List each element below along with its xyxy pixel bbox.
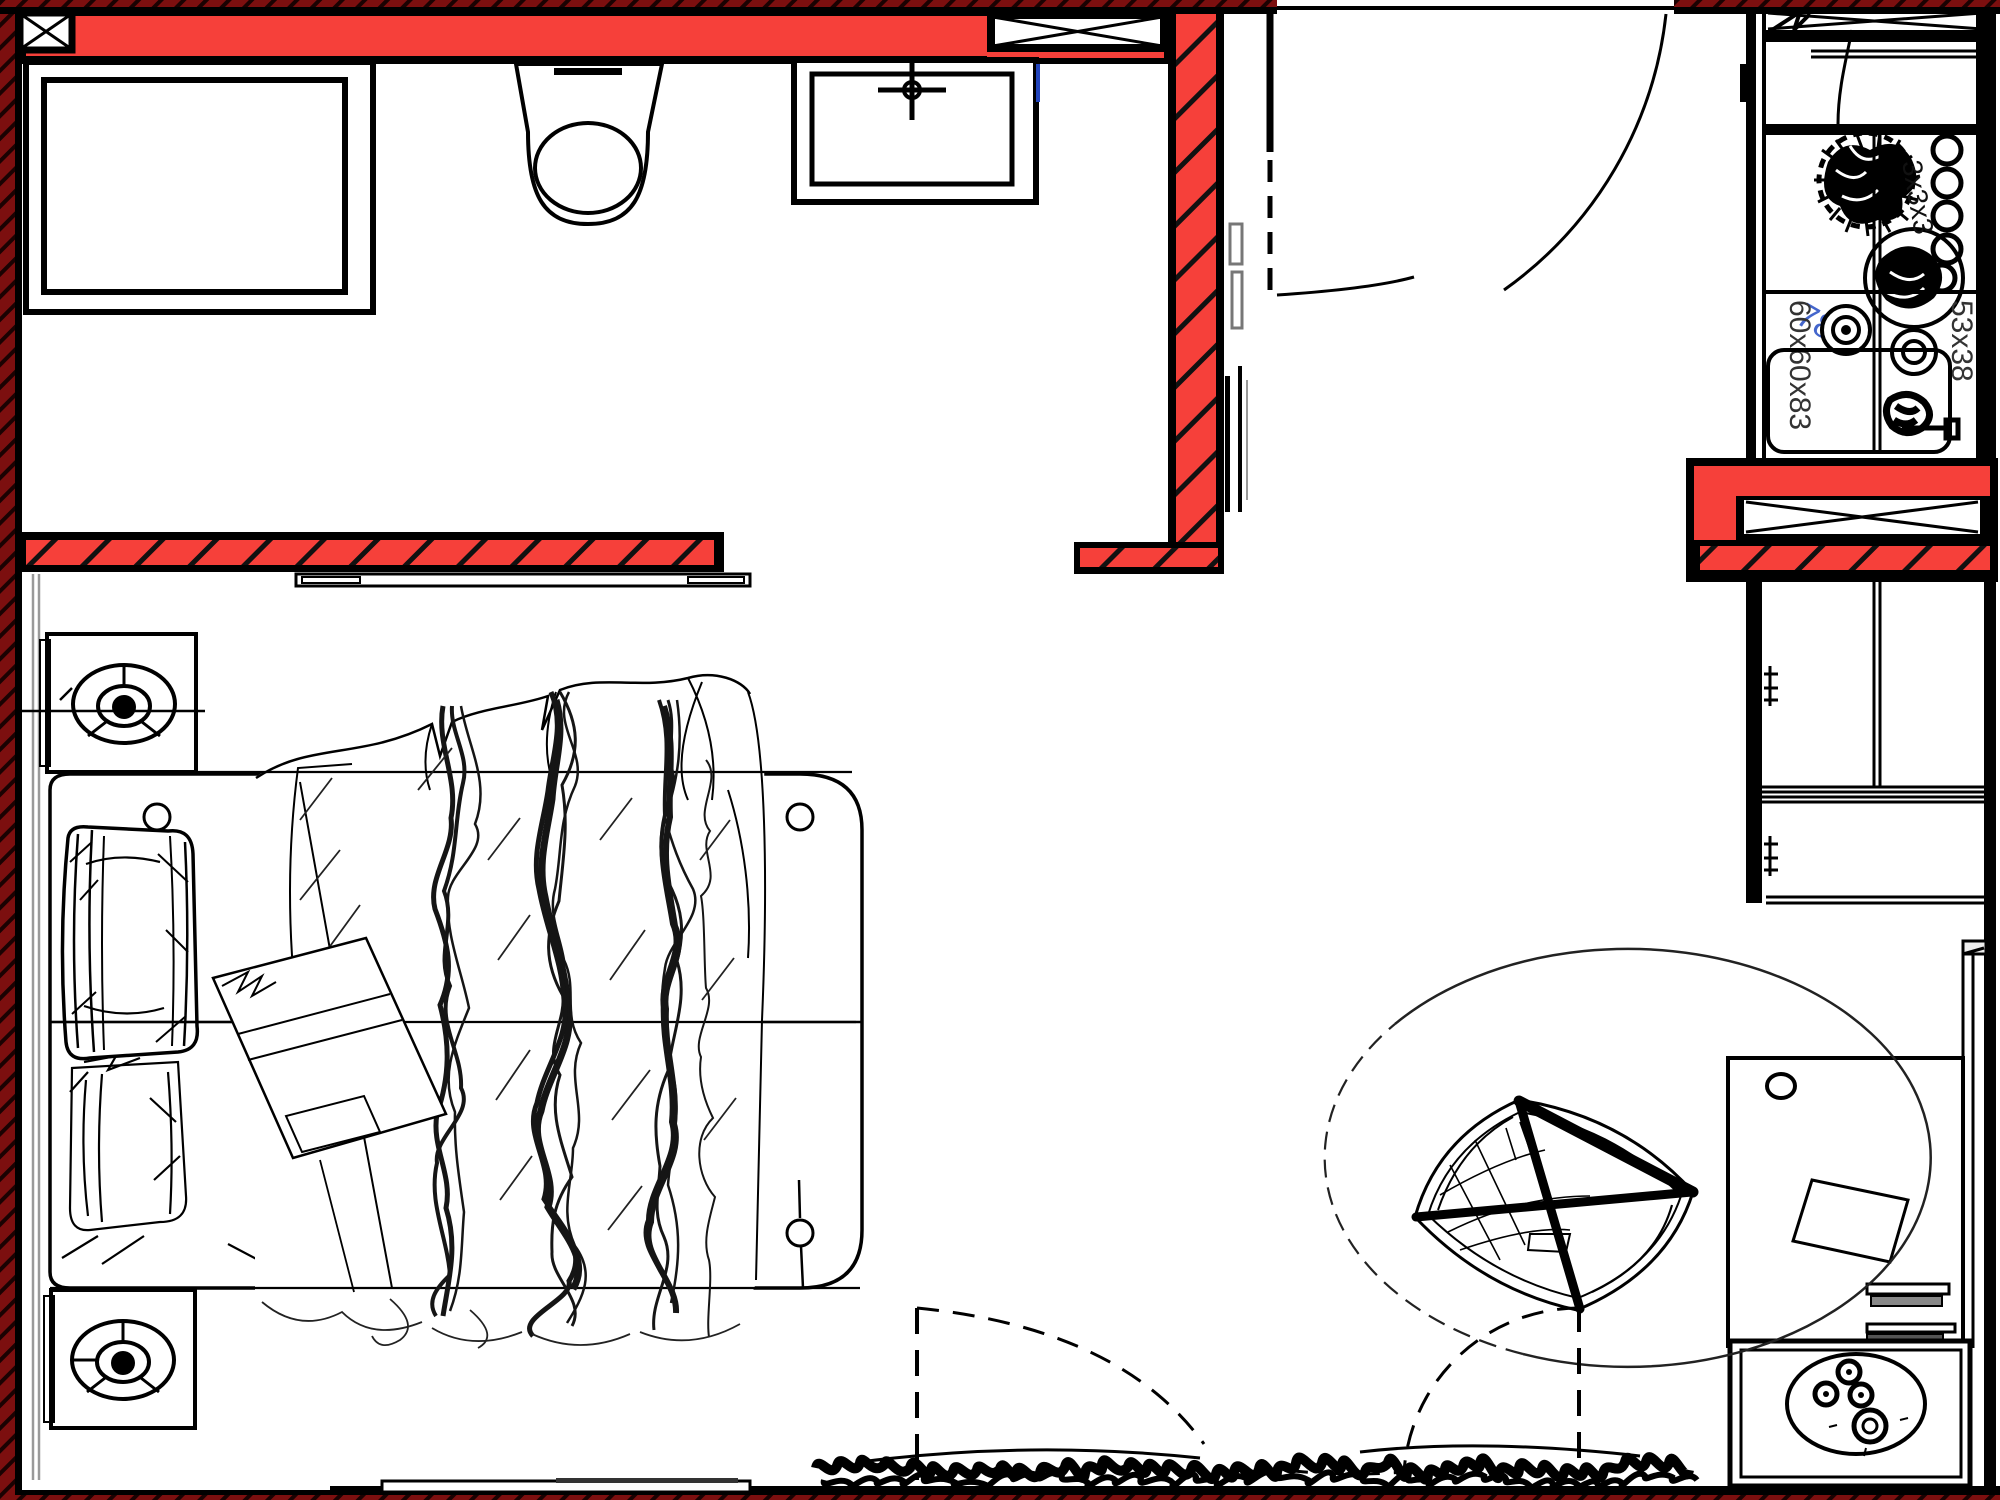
svg-text:60x60x83: 60x60x83 — [1783, 300, 1816, 430]
